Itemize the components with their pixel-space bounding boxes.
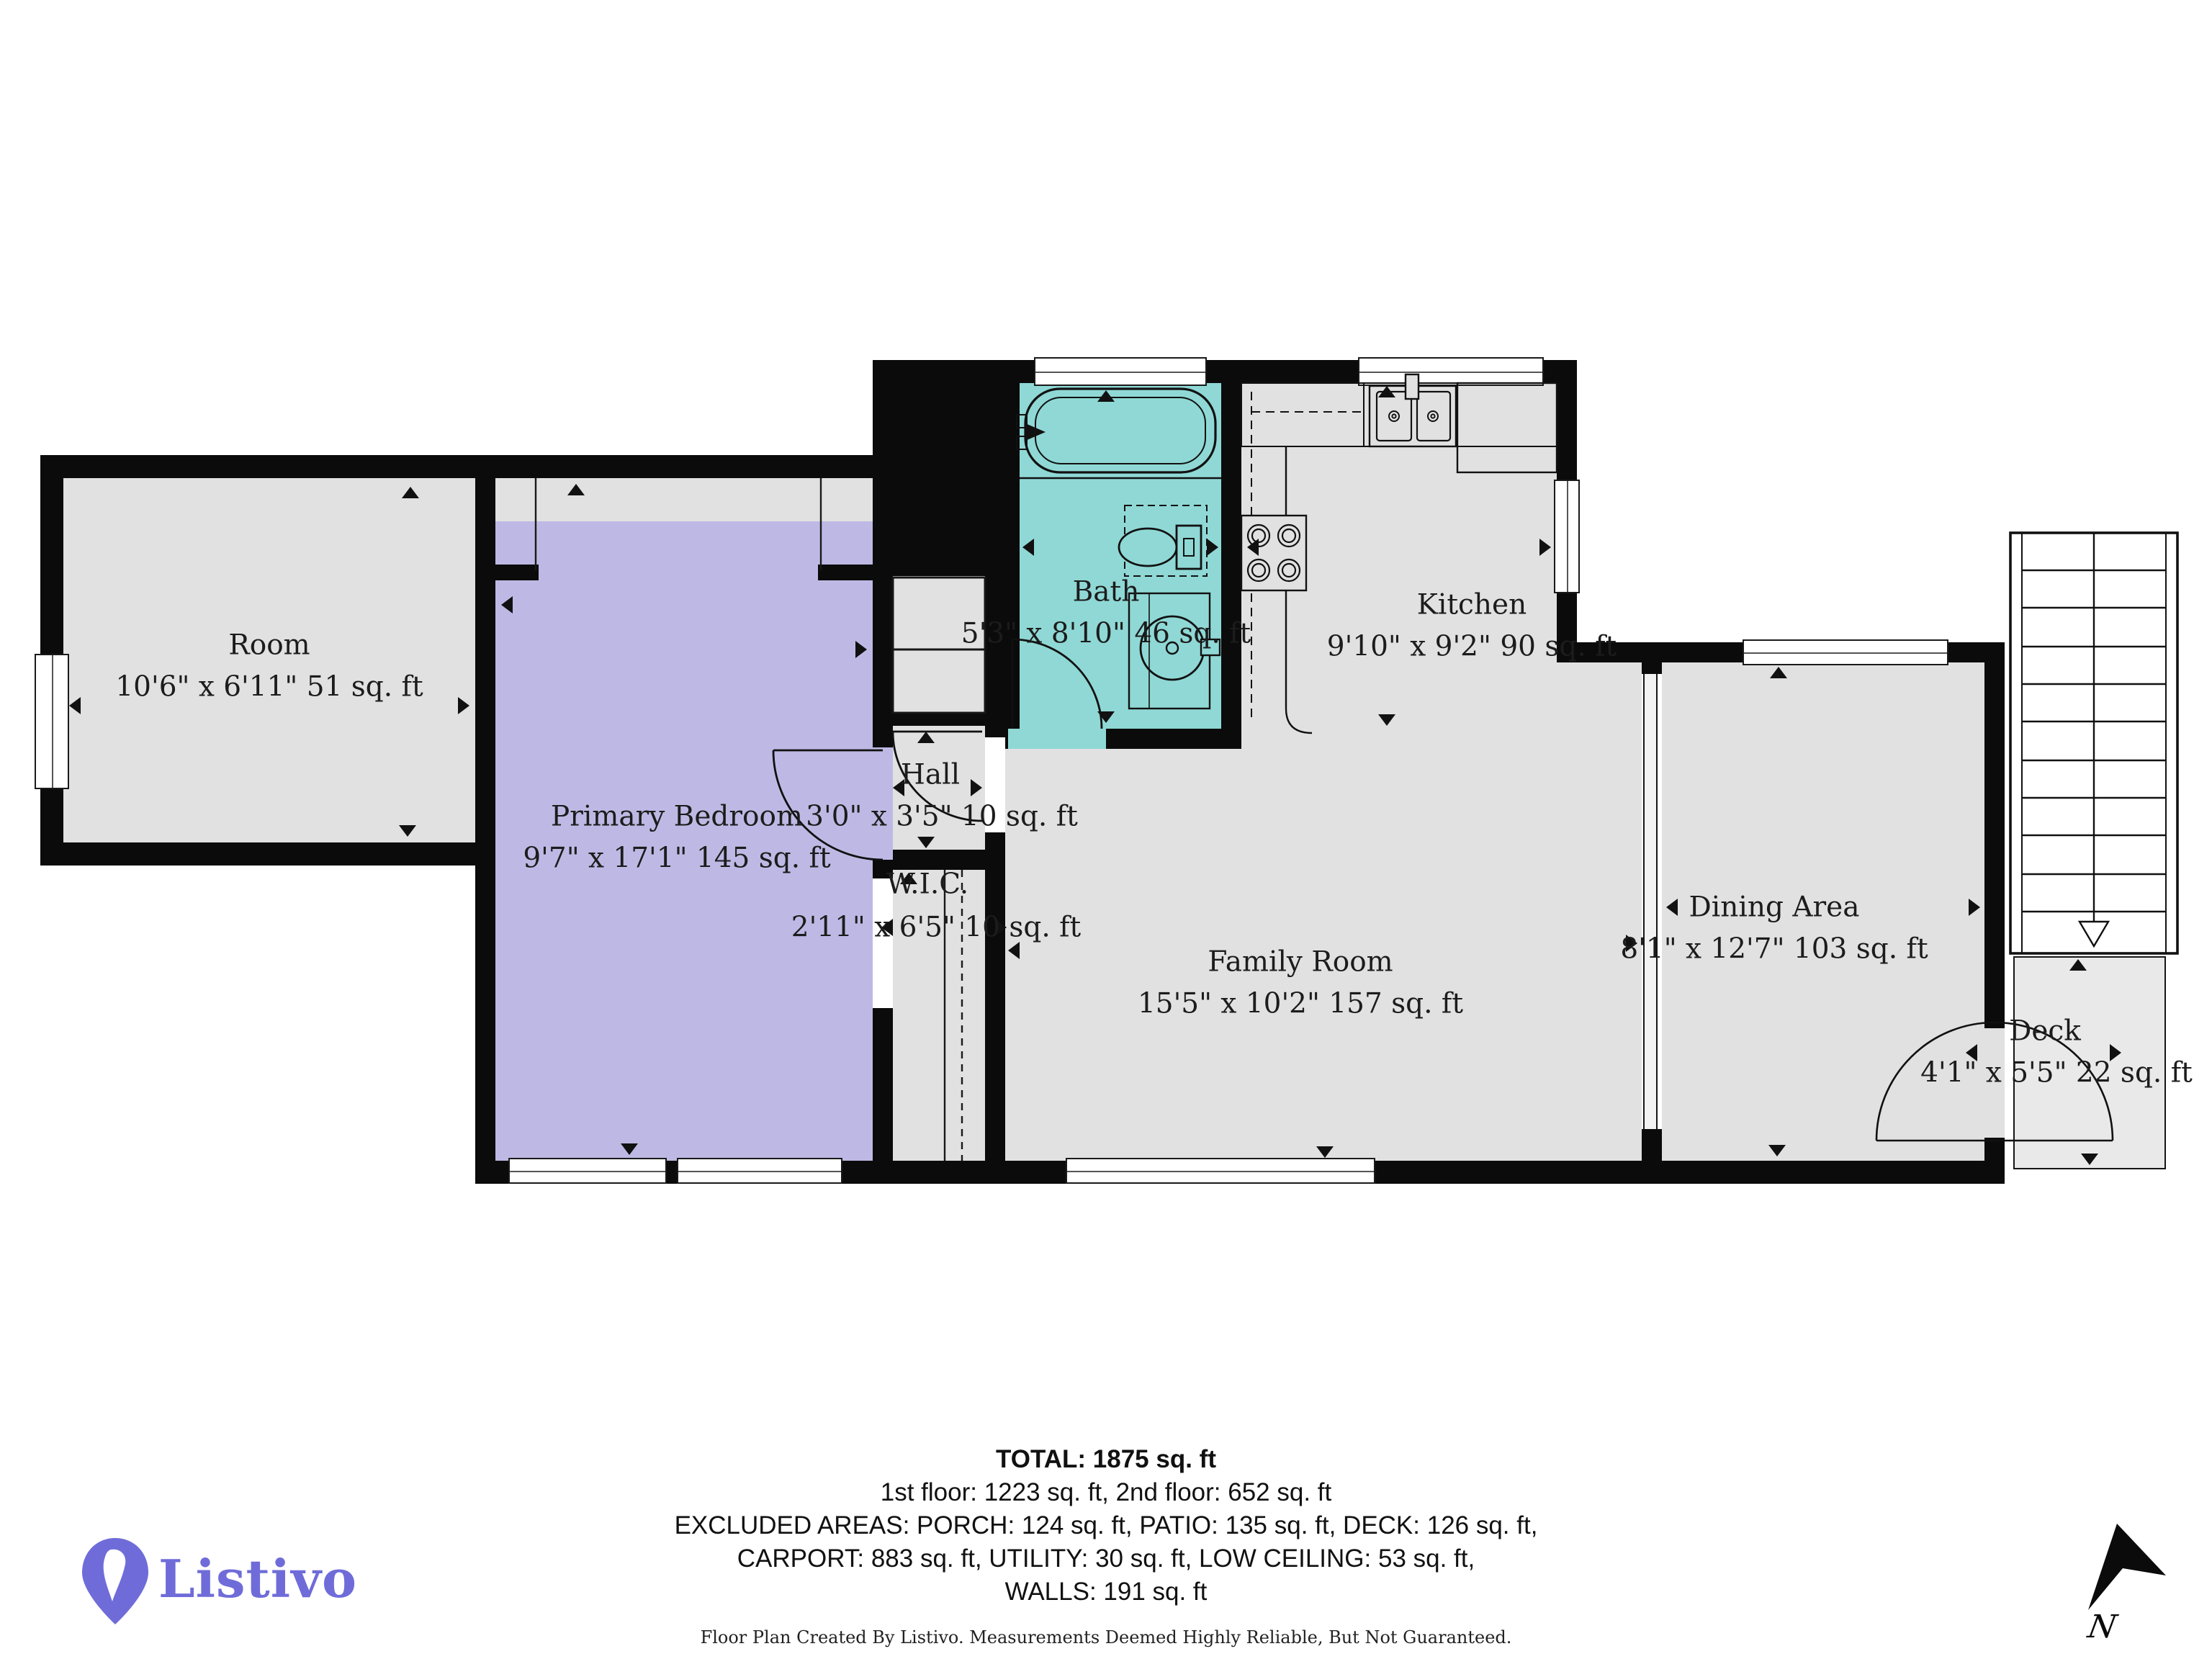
bedroom-window-1 — [508, 1158, 667, 1184]
deck-label-name: Deck — [2009, 1017, 2081, 1046]
wall — [40, 455, 495, 478]
wall — [40, 842, 495, 866]
wall — [873, 360, 1020, 576]
listivo-logo-text: Listivo — [158, 1550, 357, 1610]
kitchen-window-right — [1554, 480, 1580, 593]
family-dining-open-divider — [1643, 674, 1658, 1129]
bath-floor — [1020, 383, 1221, 729]
bedroom-window-2 — [677, 1158, 842, 1184]
bath-window — [1034, 357, 1207, 386]
kitchen-floor — [1241, 383, 1557, 749]
staircase — [2010, 533, 2177, 953]
primary-bedroom-low-ceiling-strip — [495, 478, 873, 521]
wall — [1642, 642, 1662, 674]
family-room-window — [1066, 1158, 1375, 1184]
summary-floors: 1st floor: 1223 sq. ft, 2nd floor: 652 s… — [0, 1478, 2212, 1508]
wall — [999, 576, 1020, 729]
wall — [873, 713, 1005, 726]
bath-label-name: Bath — [1073, 578, 1140, 606]
deck-label-dims: 4'1" x 5'5" 22 sq. ft — [1920, 1059, 2193, 1087]
summary-excluded-1: EXCLUDED AREAS: PORCH: 124 sq. ft, PATIO… — [0, 1511, 2212, 1541]
hall-label-name: Hall — [901, 761, 960, 789]
room-label-dims: 10'6" x 6'11" 51 sq. ft — [115, 673, 423, 701]
disclaimer-text: Floor Plan Created By Listivo. Measureme… — [0, 1627, 2212, 1647]
wall — [1106, 729, 1241, 749]
kitchen-label-name: Kitchen — [1417, 591, 1527, 619]
dining-window — [1743, 639, 1948, 665]
bedroom-label-name: Primary Bedroom — [551, 803, 803, 831]
wall — [985, 832, 1005, 870]
closet-wall-stub — [818, 565, 873, 580]
wic-label-dims: 2'11" x 6'5" 10 sq. ft — [791, 914, 1082, 942]
kitchen-label-dims: 9'10" x 9'2" 90 sq. ft — [1327, 633, 1617, 661]
wall — [475, 455, 495, 1184]
family-room-floor-upper — [1557, 662, 1642, 749]
wall — [873, 1008, 893, 1161]
dining-label-name: Dining Area — [1689, 894, 1860, 922]
bedroom-label-dims: 9'7" x 17'1" 145 sq. ft — [523, 845, 830, 873]
summary-total: TOTAL: 1875 sq. ft — [0, 1444, 2212, 1475]
wic-label-name: W.I.C. — [886, 871, 968, 899]
dining-label-dims: 8'1" x 12'7" 103 sq. ft — [1620, 935, 1928, 963]
wall — [475, 455, 893, 478]
wall — [1221, 383, 1241, 729]
hall-label-dims: 3'0" x 3'5" 10 sq. ft — [806, 803, 1078, 831]
family-label-name: Family Room — [1208, 948, 1393, 976]
wall — [1642, 1129, 1662, 1161]
floor-plan-page: Room 10'6" x 6'11" 51 sq. ft Primary Bed… — [0, 0, 2212, 1659]
bath-door-opening — [1008, 729, 1106, 749]
bath-label-dims: 5'3" x 8'10" 46 sq. ft — [961, 620, 1251, 648]
wall — [1984, 642, 2005, 1028]
room-label-name: Room — [228, 631, 310, 660]
room-window — [35, 654, 69, 789]
kitchen-window-top — [1358, 357, 1544, 386]
closet-wall-stub — [495, 565, 539, 580]
wall — [873, 455, 893, 747]
family-label-dims: 15'5" x 10'2" 157 sq. ft — [1138, 990, 1463, 1018]
